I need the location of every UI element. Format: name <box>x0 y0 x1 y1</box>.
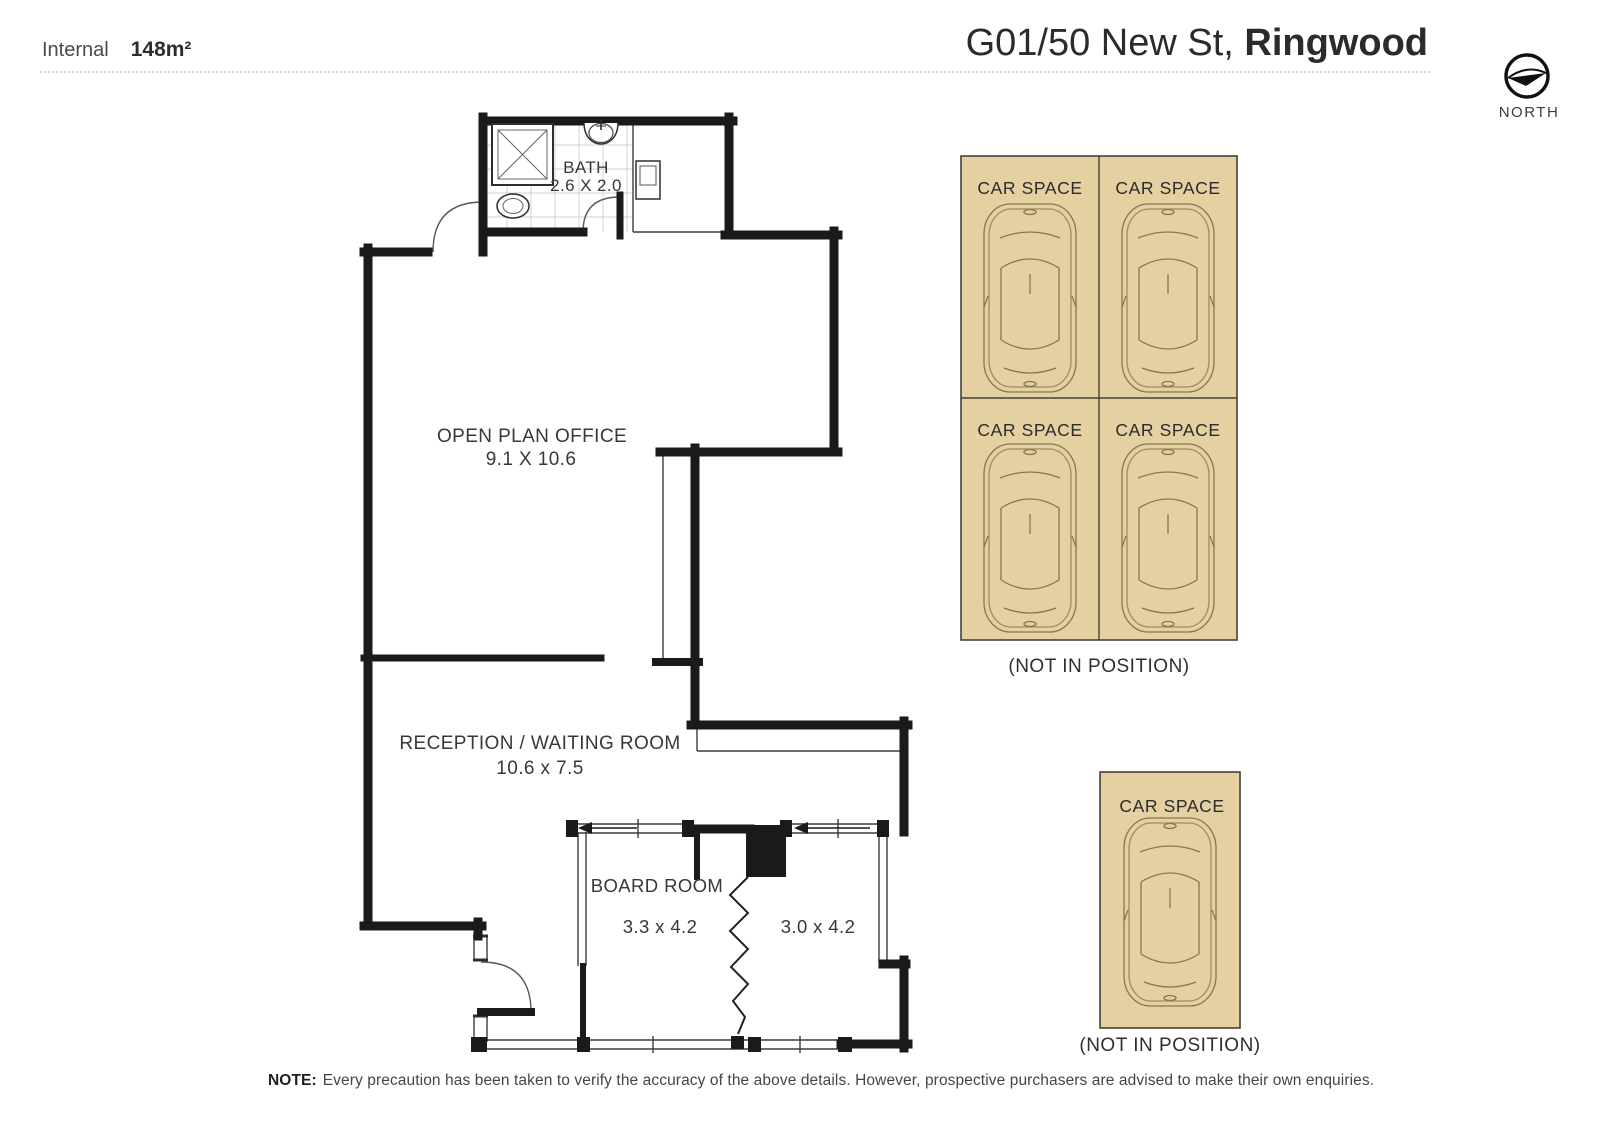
boardroom-dims-left: 3.3 x 4.2 <box>623 916 698 938</box>
door-jamb-caps <box>473 936 488 1040</box>
note-prefix: NOTE: <box>268 1072 317 1089</box>
note-text: Every precaution has been taken to verif… <box>323 1072 1374 1089</box>
floor-plan-svg <box>0 0 1600 1132</box>
sink-icon <box>584 120 618 144</box>
compass-icon <box>1506 55 1548 97</box>
reception-label: RECEPTION / WAITING ROOM <box>399 733 680 755</box>
car-space-label-2: CAR SPACE <box>1115 178 1220 199</box>
cabinet-icon <box>636 161 660 199</box>
bath-label: BATH <box>563 158 609 178</box>
car-space-label-3: CAR SPACE <box>977 420 1082 441</box>
disclaimer-note: NOTE:Every precaution has been taken to … <box>268 1072 1374 1090</box>
thin-walls <box>474 121 904 1053</box>
toilet-icon <box>497 194 529 218</box>
car-space-grid <box>961 156 1237 640</box>
not-in-position-grid: (NOT IN POSITION) <box>1008 656 1189 678</box>
boardroom-label: BOARD ROOM <box>591 875 723 897</box>
office-entry-door-arc <box>433 202 483 252</box>
floor-plan-page: Internal148m² G01/50 New St, Ringwood NO… <box>0 0 1600 1132</box>
reception-dims: 10.6 x 7.5 <box>496 758 583 780</box>
shower-icon <box>492 124 553 185</box>
car-space-label-4: CAR SPACE <box>1115 420 1220 441</box>
zigzag-divider <box>730 877 748 1049</box>
car-space-label-5: CAR SPACE <box>1119 796 1224 817</box>
not-in-position-single: (NOT IN POSITION) <box>1079 1035 1260 1057</box>
reception-door-arc <box>481 962 531 1012</box>
office-dims: 9.1 X 10.6 <box>486 449 577 471</box>
outer-walls <box>364 117 908 1048</box>
boardroom-dims-right: 3.0 x 4.2 <box>781 916 856 938</box>
office-label: OPEN PLAN OFFICE <box>437 426 627 448</box>
bath-dims: 2.6 X 2.0 <box>550 176 622 196</box>
car-space-label-1: CAR SPACE <box>977 178 1082 199</box>
bath-door-arc <box>583 197 620 232</box>
